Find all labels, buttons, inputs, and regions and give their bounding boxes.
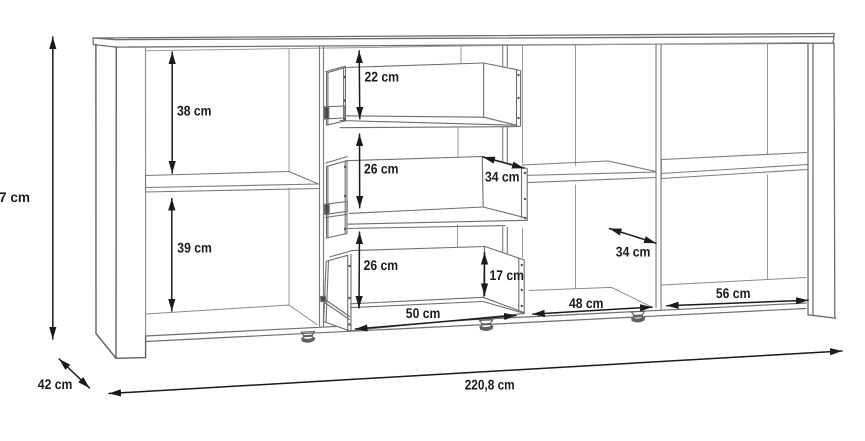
svg-text:7 cm: 7 cm xyxy=(0,189,30,205)
svg-text:39 cm: 39 cm xyxy=(177,239,212,255)
svg-text:34 cm: 34 cm xyxy=(485,169,520,185)
svg-text:38 cm: 38 cm xyxy=(177,103,212,119)
svg-text:22 cm: 22 cm xyxy=(365,69,400,85)
svg-text:42 cm: 42 cm xyxy=(38,376,73,392)
svg-text:48 cm: 48 cm xyxy=(569,295,604,311)
svg-text:26 cm: 26 cm xyxy=(364,161,399,177)
svg-text:17 cm: 17 cm xyxy=(490,267,525,283)
svg-text:220,8 cm: 220,8 cm xyxy=(465,377,515,393)
svg-text:34 cm: 34 cm xyxy=(616,244,651,260)
svg-text:50 cm: 50 cm xyxy=(406,305,441,321)
svg-text:56 cm: 56 cm xyxy=(716,285,751,301)
svg-text:26 cm: 26 cm xyxy=(364,257,399,273)
